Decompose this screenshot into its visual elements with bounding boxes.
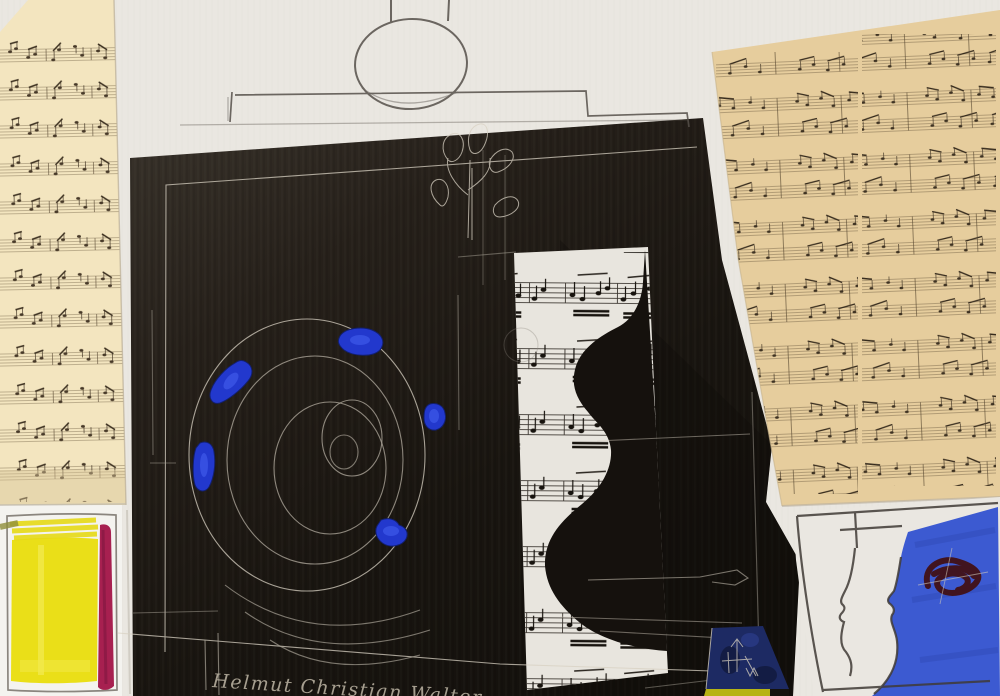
faces-paper bbox=[793, 497, 1000, 696]
sheet-music-left bbox=[0, 0, 130, 505]
black-panel bbox=[120, 110, 810, 696]
collage-scene: Helmut Christian Walter bbox=[0, 0, 1000, 696]
yellow-square bbox=[0, 520, 98, 683]
paper-bottom-left bbox=[0, 505, 130, 696]
artwork-photo: Helmut Christian Walter bbox=[0, 0, 1000, 696]
yellow-marker-strokes bbox=[10, 520, 98, 538]
